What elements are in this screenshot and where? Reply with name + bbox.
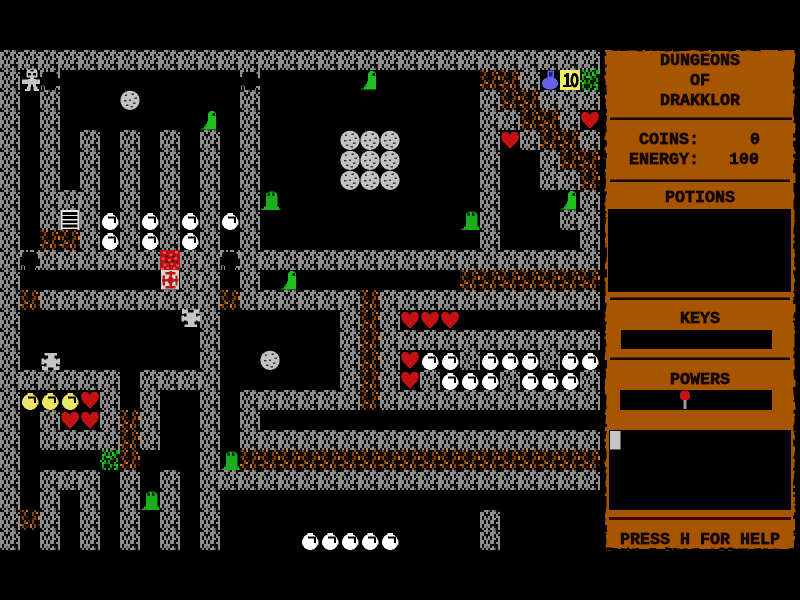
svg-text:DRAKKLOR: DRAKKLOR: [660, 92, 741, 111]
svg-text:0: 0: [750, 131, 760, 150]
svg-text:OF: OF: [690, 72, 710, 91]
svg-text:ENERGY:: ENERGY:: [629, 151, 699, 170]
svg-text:KEYS: KEYS: [680, 310, 720, 329]
svg-text:POTIONS: POTIONS: [665, 189, 735, 208]
svg-text:COINS:: COINS:: [639, 131, 699, 150]
svg-text:100: 100: [729, 151, 759, 170]
svg-text:POWERS: POWERS: [670, 371, 730, 390]
svg-text:PRESS H FOR HELP: PRESS H FOR HELP: [620, 531, 780, 550]
svg-text:DUNGEONS: DUNGEONS: [660, 52, 740, 71]
